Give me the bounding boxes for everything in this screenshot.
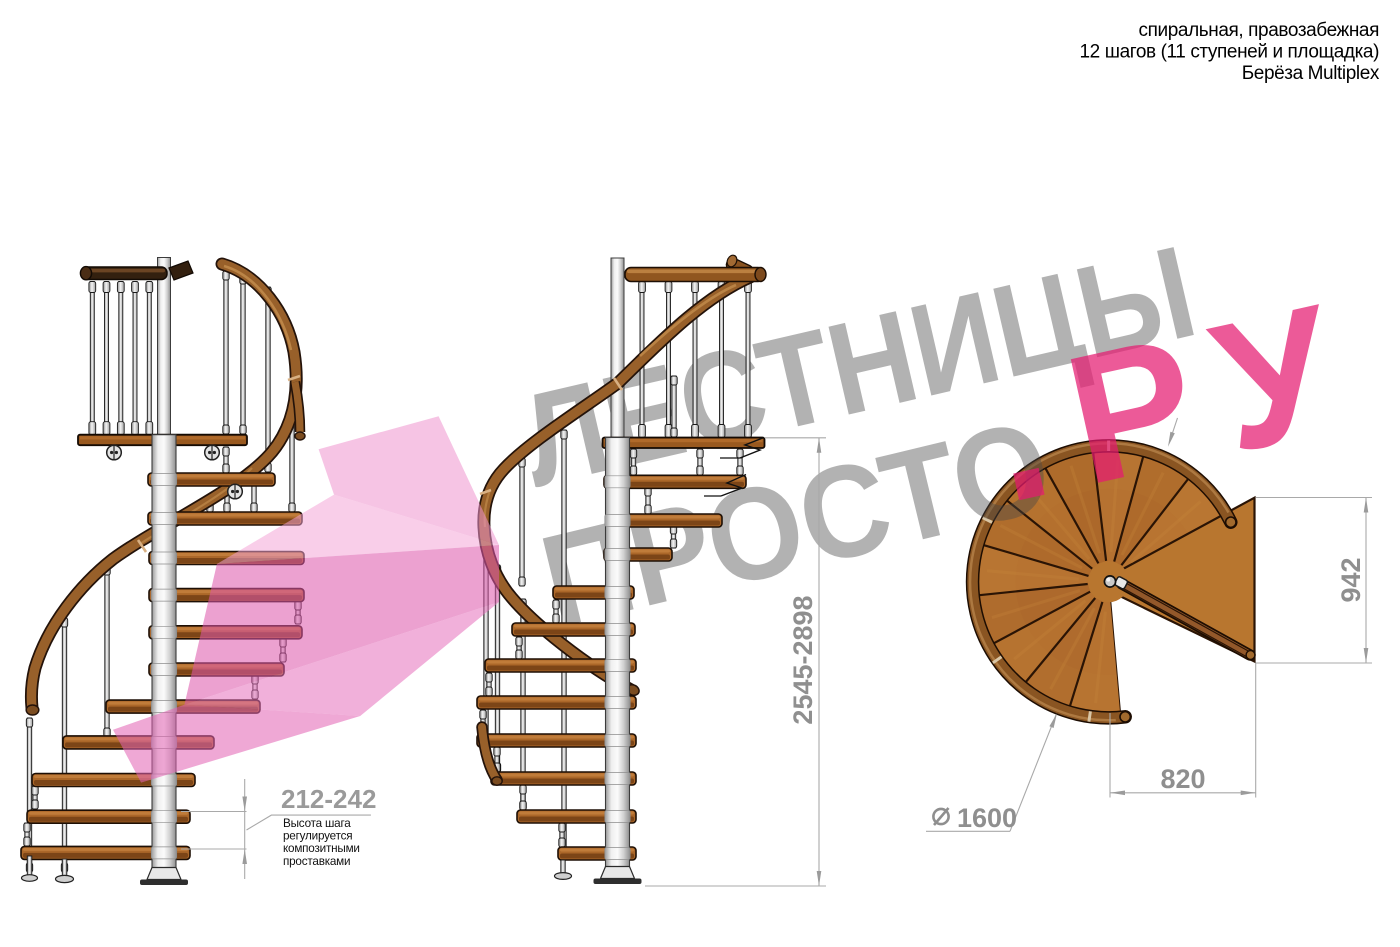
svg-text:Высота шагарегулируетсякомпози: Высота шагарегулируетсякомпозитнымипрост… [283, 817, 360, 868]
svg-text:212-242: 212-242 [281, 784, 376, 814]
svg-text:1600: 1600 [957, 803, 1017, 833]
svg-text:942: 942 [1336, 557, 1366, 602]
svg-text:2545-2898: 2545-2898 [788, 595, 818, 724]
svg-text:820: 820 [1160, 764, 1205, 794]
